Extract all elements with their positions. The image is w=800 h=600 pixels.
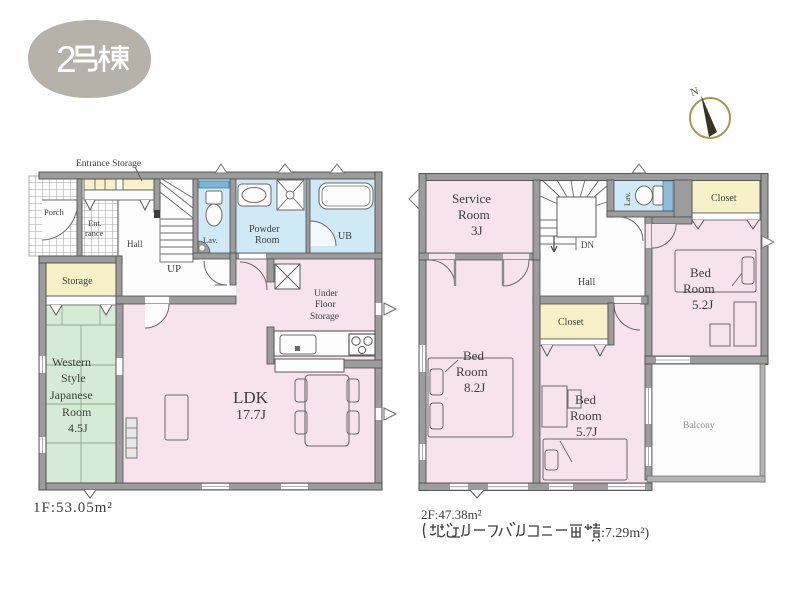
svg-text:Western: Western (52, 355, 91, 369)
svg-text:Powder: Powder (249, 224, 280, 235)
svg-text:Closet: Closet (558, 317, 584, 328)
svg-text:2F:47.38m²: 2F:47.38m² (421, 507, 482, 522)
svg-text:Service: Service (452, 191, 491, 206)
svg-text:Balcony: Balcony (683, 421, 715, 431)
svg-text:Entrance Storage: Entrance Storage (76, 159, 141, 169)
svg-text:Bed: Bed (575, 392, 596, 407)
svg-text:UP: UP (167, 263, 181, 275)
svg-text:Room: Room (255, 235, 280, 246)
svg-text:5.7J: 5.7J (576, 424, 597, 439)
svg-text:17.7J: 17.7J (236, 408, 267, 423)
svg-text:8.2J: 8.2J (464, 380, 485, 395)
svg-text:Storage: Storage (62, 276, 93, 287)
svg-text:1F:53.05m²: 1F:53.05m² (33, 500, 113, 516)
svg-text:Bed: Bed (463, 348, 484, 363)
svg-text:LDK: LDK (233, 388, 269, 407)
svg-text::7.29m²): :7.29m²) (601, 526, 649, 541)
svg-text:Room: Room (456, 364, 488, 379)
svg-text:Floor: Floor (315, 300, 336, 310)
svg-text:Style: Style (61, 371, 86, 385)
svg-text:Hall: Hall (127, 239, 143, 249)
svg-text:Bed: Bed (690, 265, 711, 280)
svg-text:Storage: Storage (310, 312, 339, 322)
svg-text:Room: Room (570, 408, 602, 423)
svg-text:5.2J: 5.2J (692, 297, 713, 312)
svg-text:Room: Room (62, 405, 92, 419)
svg-text:Lav.: Lav. (623, 192, 632, 206)
svg-text:Under: Under (314, 289, 339, 299)
svg-text:Ent.: Ent. (88, 218, 102, 228)
svg-text:Hall: Hall (578, 277, 595, 288)
svg-text:Room: Room (683, 281, 715, 296)
svg-text:rance: rance (85, 228, 104, 238)
svg-text:Porch: Porch (44, 207, 65, 217)
svg-text:Japanese: Japanese (50, 388, 93, 402)
svg-text:4.5J: 4.5J (68, 421, 88, 435)
svg-text:DN: DN (581, 240, 594, 250)
svg-text:Room: Room (458, 207, 490, 222)
svg-text:3J: 3J (471, 223, 483, 238)
svg-text:UB: UB (338, 231, 352, 242)
svg-text:Closet: Closet (711, 193, 737, 204)
